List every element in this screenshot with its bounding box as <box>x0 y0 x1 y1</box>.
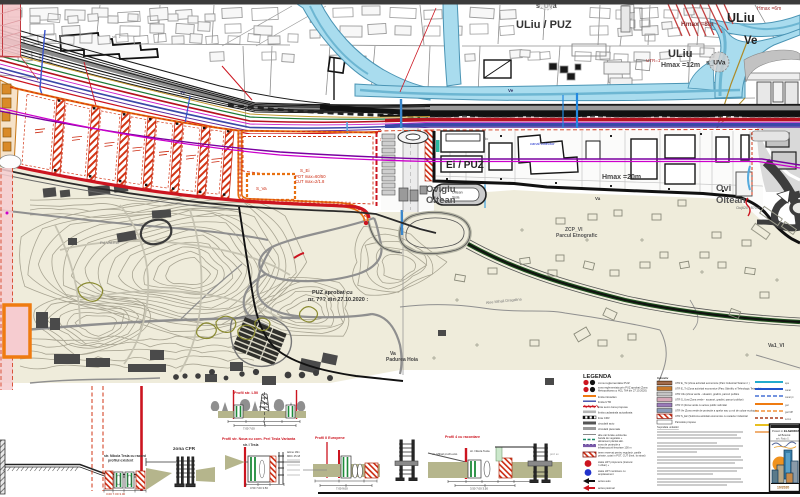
svg-text:ULiu / PUZ: ULiu / PUZ <box>516 19 572 31</box>
svg-text:Profil str. Noua cu corn. Prel: Profil str. Noua cu corn. Prel Tesla Var… <box>222 437 296 441</box>
svg-text:UTR S_Eic (Subzona activitati: UTR S_Eic (Subzona activitati economice … <box>675 414 748 418</box>
svg-text:3.50 7.00 3.50: 3.50 7.00 3.50 <box>250 486 268 490</box>
svg-text:zona reglementata PUZ: zona reglementata PUZ <box>598 381 630 385</box>
svg-text:ad Botezat: ad Botezat <box>778 433 791 437</box>
svg-text:Profil 4 cu racordare: Profil 4 cu racordare <box>445 435 480 439</box>
svg-text:circulatii auto: circulatii auto <box>598 422 615 426</box>
svg-text:apa: apa <box>785 382 790 385</box>
svg-text:linia CFR: linia CFR <box>598 416 610 420</box>
svg-text:canal: canal <box>785 389 791 392</box>
svg-text:termo: termo <box>785 418 792 421</box>
svg-text:Ve: Ve <box>508 88 514 93</box>
svg-text:circulatii pietonale: circulatii pietonale <box>598 427 621 431</box>
svg-text:infrastructurii feroviare 100: infrastructurii feroviare 100 m <box>598 446 632 450</box>
svg-text:Oltean: Oltean <box>716 195 746 206</box>
svg-text:Va1_VI: Va1_VI <box>768 343 785 349</box>
svg-text:Hmax =8m: Hmax =8m <box>681 21 714 28</box>
svg-text:Ei / PUZ: Ei / PUZ <box>446 160 484 171</box>
svg-text:str. I Tesla: str. I Tesla <box>243 443 259 447</box>
svg-text:CUT max=2/1.8: CUT max=2/1.8 <box>295 179 325 184</box>
svg-text:ULiu: ULiu <box>668 48 692 60</box>
svg-text:UTR=1: UTR=1 <box>646 58 661 63</box>
svg-text:profilul existent: profilul existent <box>108 459 134 463</box>
svg-text:Hmax =20m: Hmax =20m <box>602 174 641 181</box>
svg-text:str. Mihail profil exist.: str. Mihail profil exist. <box>432 452 458 456</box>
svg-text:Metropolitana cu HCL 764 din 2: Metropolitana cu HCL 764 din 27.10.2020) <box>598 389 647 393</box>
svg-text:Ve: Ve <box>744 35 757 47</box>
svg-text:7.00 9.00: 7.00 9.00 <box>336 487 348 491</box>
svg-text:MDC 45.18: MDC 45.18 <box>287 454 301 458</box>
svg-text:prof. ex: prof. ex <box>550 452 559 456</box>
svg-text:Indicativ: Indicativ <box>657 376 669 380</box>
svg-text:s_UVa: s_UVa <box>706 60 726 67</box>
svg-text:UTR Vi (Zona verde cu acces pu: UTR Vi (Zona verde cu acces public nelim… <box>675 403 727 407</box>
svg-text:Parcul Etnografic: Parcul Etnografic <box>556 233 598 239</box>
svg-text:private, cotat in POT, CUT (li: private, cotat in POT, CUT (limit. la st… <box>598 454 646 458</box>
svg-text:Profil II Europene: Profil II Europene <box>315 436 345 440</box>
svg-text:3.00 7.00 3.00: 3.00 7.00 3.00 <box>106 492 126 496</box>
svg-text:str. 1: str. 1 <box>112 34 121 39</box>
svg-text:dc: dc <box>484 136 488 141</box>
svg-text:canal pl.: canal pl. <box>785 396 794 399</box>
svg-text:ELABORATOR: ELABORATOR <box>784 429 800 433</box>
svg-text:Suprafata unitatilor: Suprafata unitatilor <box>657 425 679 429</box>
svg-text:UTR Uliu (Zona verde - situato: UTR Uliu (Zona verde - situatori, gradin… <box>675 392 740 396</box>
svg-text:S_Va: S_Va <box>256 186 267 191</box>
svg-text:gaz MP: gaz MP <box>785 411 794 414</box>
svg-text:Pd VALEA: Pd VALEA <box>100 240 119 245</box>
svg-text:acces pietonal: acces pietonal <box>598 486 615 490</box>
svg-text:amplasament: amplasament <box>598 472 614 476</box>
svg-text:str. Nikola Tesla cu racord: str. Nikola Tesla cu racord <box>104 454 146 458</box>
svg-text:acces auto: acces auto <box>598 479 611 483</box>
svg-text:Va: Va <box>595 196 601 201</box>
svg-text:S_Ei: S_Ei <box>300 168 310 173</box>
svg-text:LEGENDA: LEGENDA <box>583 374 612 380</box>
svg-text:/ urban) +: / urban) + <box>598 463 610 467</box>
svg-text:aliniament plantat alin.: aliniament plantat alin. <box>598 439 624 443</box>
svg-text:limita intravilan: limita intravilan <box>598 395 617 399</box>
svg-text:UTR E_Tr (Zona activitati econ: UTR E_Tr (Zona activitati economice (Par… <box>675 387 762 391</box>
svg-text:Hmax =6m: Hmax =6m <box>757 6 781 12</box>
svg-text:ULiu: ULiu <box>727 11 755 25</box>
svg-text:Cluj620 +570m: Cluj620 +570m <box>736 206 760 210</box>
svg-text:linia semi-zona propusa: linia semi-zona propusa <box>598 405 628 409</box>
svg-text:Ve: Ve <box>180 90 186 95</box>
svg-text:Proiect nr.: Proiect nr. <box>772 429 784 433</box>
svg-text:UTR E_Tic (Zona activitati eco: UTR E_Tic (Zona activitati economice (Pa… <box>675 381 750 385</box>
svg-text:Ovi: Ovi <box>716 183 731 194</box>
svg-text:3.50 7.00 3.50: 3.50 7.00 3.50 <box>470 487 488 491</box>
svg-text:7.00 7.00: 7.00 7.00 <box>243 427 255 431</box>
svg-text:nr. 7?? din 27.10.2020 :: nr. 7?? din 27.10.2020 : <box>308 297 368 303</box>
svg-text:limita cadastrala actualizata: limita cadastrala actualizata <box>598 411 633 415</box>
svg-text:canal colector: canal colector <box>530 141 555 146</box>
svg-text:Va: Va <box>430 199 435 204</box>
svg-text:zona CFR: zona CFR <box>173 446 196 452</box>
svg-text:Padurea Hoia: Padurea Hoia <box>386 357 418 363</box>
svg-text:limita UTR: limita UTR <box>598 400 611 404</box>
svg-text:latime 18m: latime 18m <box>287 450 300 454</box>
svg-text:Hmax =12m: Hmax =12m <box>661 62 700 69</box>
svg-text:arh. Radu S.: arh. Radu S. <box>776 438 790 441</box>
svg-text:10/2020: 10/2020 <box>777 486 789 490</box>
svg-text:str. Nikola Tesla: str. Nikola Tesla <box>470 449 490 453</box>
svg-text:PUZ aprobat cu: PUZ aprobat cu <box>312 290 353 296</box>
svg-text:Profil str. L50: Profil str. L50 <box>234 391 258 395</box>
svg-text:UTR Ve (Zona verde de protecti: UTR Ve (Zona verde de protectie a apelor… <box>675 409 757 413</box>
svg-text:Parcelele propuse: Parcelele propuse <box>675 420 696 424</box>
svg-text:Oviglu: Oviglu <box>426 184 456 195</box>
svg-text:UTR S_Uva (Zona verde - scuaru: UTR S_Uva (Zona verde - scuaruri, gradin… <box>675 398 744 402</box>
